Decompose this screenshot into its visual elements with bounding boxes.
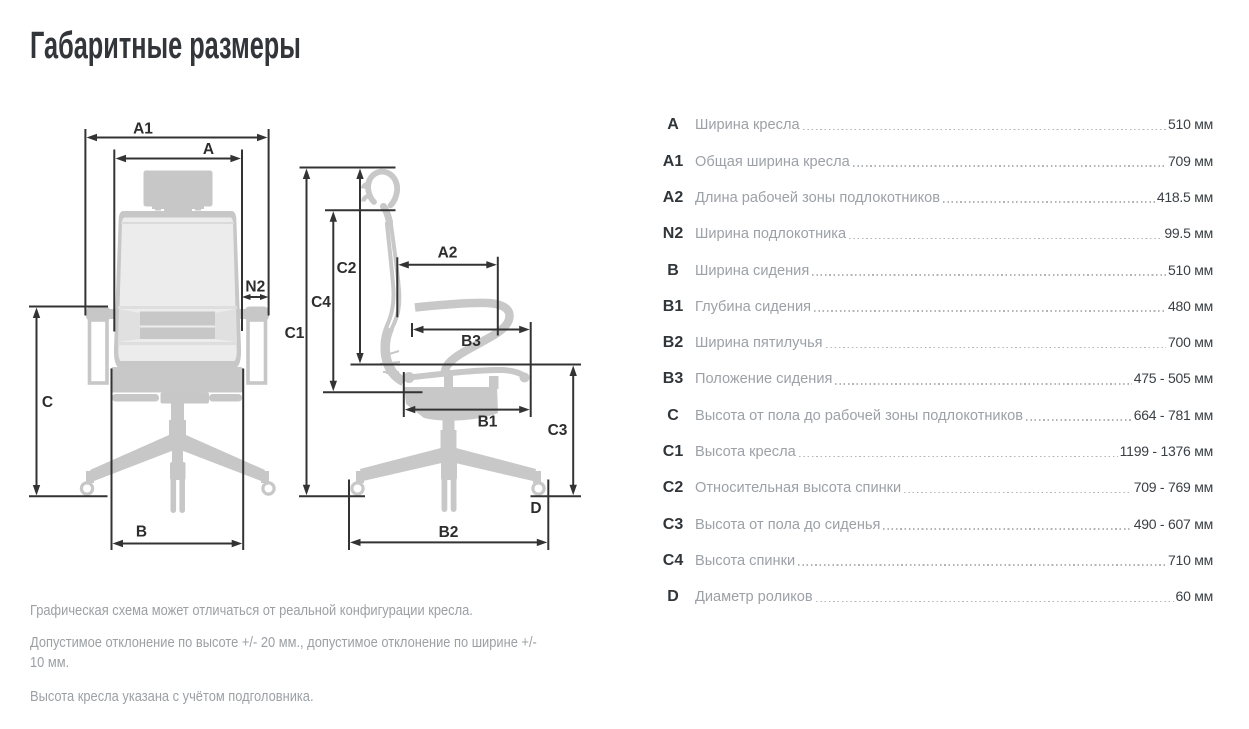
svg-text:A1: A1 — [133, 121, 153, 138]
svg-text:B2: B2 — [439, 524, 459, 541]
svg-text:B: B — [136, 524, 147, 541]
svg-text:C: C — [42, 394, 53, 411]
svg-text:D: D — [530, 500, 541, 517]
svg-text:N2: N2 — [245, 279, 265, 296]
svg-text:C3: C3 — [548, 422, 568, 439]
svg-text:B1: B1 — [478, 414, 498, 431]
svg-text:B3: B3 — [461, 333, 481, 350]
svg-text:C1: C1 — [285, 325, 305, 342]
svg-text:C2: C2 — [337, 260, 357, 277]
svg-text:A: A — [203, 141, 214, 158]
svg-text:C4: C4 — [311, 294, 331, 311]
svg-text:A2: A2 — [438, 245, 458, 262]
